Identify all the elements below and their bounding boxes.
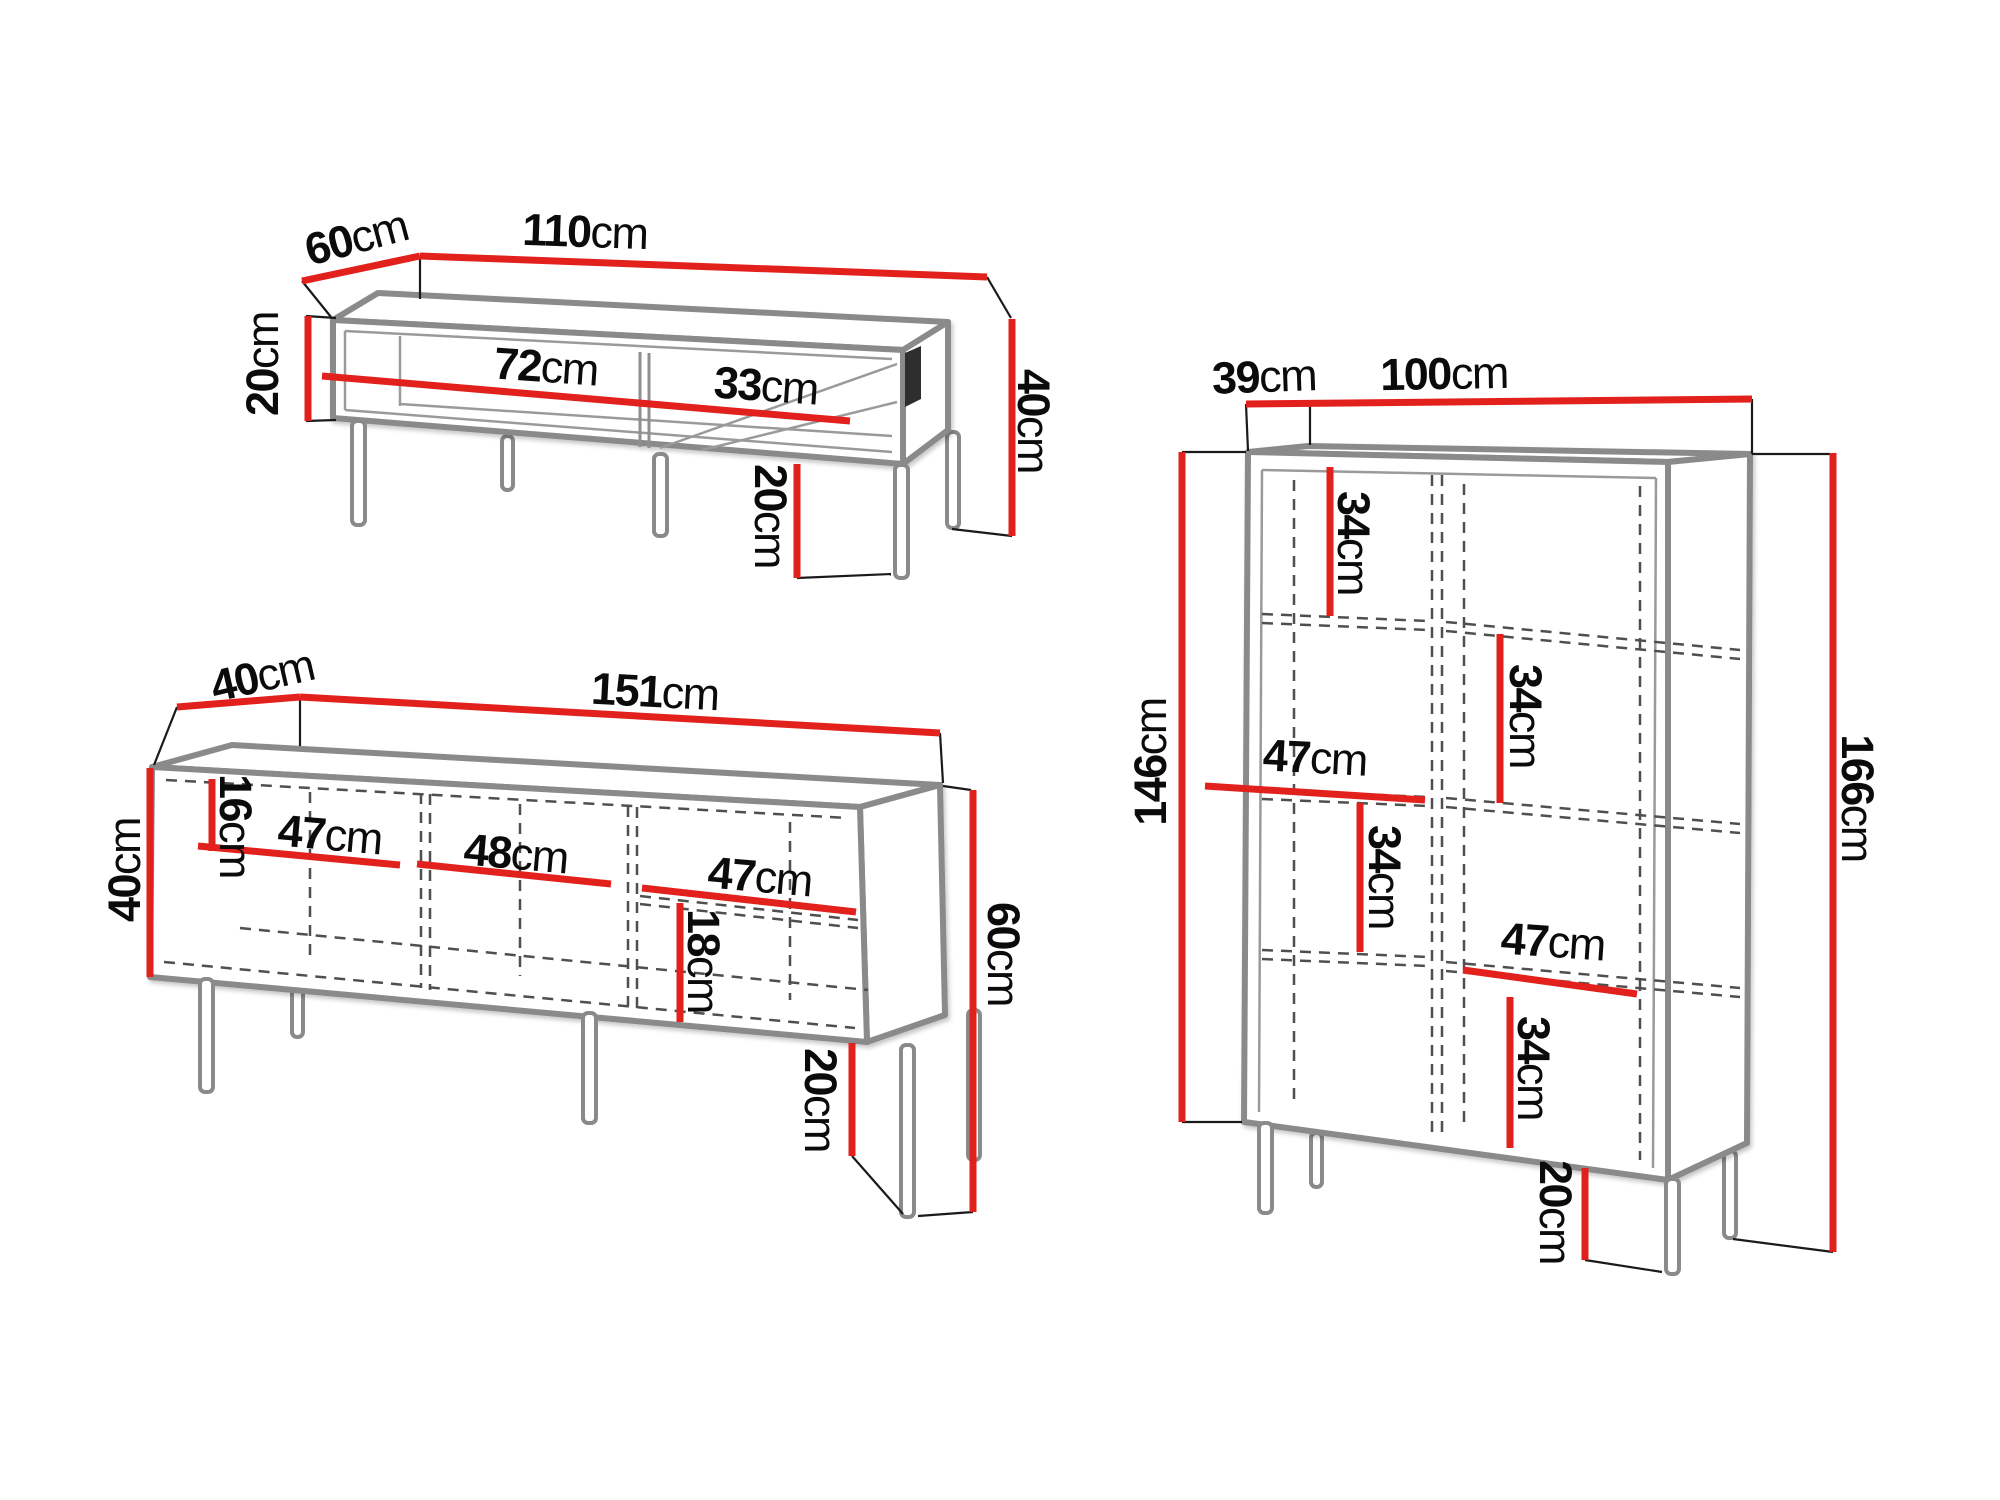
dim-line-width bbox=[420, 256, 987, 277]
sideboard-width-label: 151cm bbox=[590, 662, 720, 720]
diagram-canvas: 60cm 110cm 20cm 72cm 33cm 40cm 20cm bbox=[0, 0, 2000, 1500]
cabinet-carcass-height-label: 146cm bbox=[1125, 698, 1176, 826]
cabinet-width-label: 100cm bbox=[1380, 346, 1508, 399]
coffee-shelf-right-label: 33cm bbox=[712, 356, 819, 414]
display-cabinet: 39cm 100cm 146cm 34cm 47cm 34cm 34cm 47c… bbox=[1125, 346, 1884, 1274]
coffee-table: 60cm 110cm 20cm 72cm 33cm 40cm 20cm bbox=[237, 199, 1060, 578]
coffee-table-side-opening bbox=[905, 346, 921, 407]
cabinet-depth-label: 39cm bbox=[1211, 349, 1317, 404]
coffee-shelf-left-label: 72cm bbox=[492, 337, 599, 395]
sideboard: 40cm 151cm 40cm 16cm 47cm 48cm 47cm 18cm… bbox=[99, 638, 1030, 1217]
sideboard-top-offset-label: 16cm bbox=[211, 774, 262, 878]
coffee-table-carcass bbox=[333, 293, 948, 464]
cabinet-left-mid-section-label: 34cm bbox=[1360, 825, 1411, 929]
coffee-width-label: 110cm bbox=[522, 203, 649, 258]
cabinet-right-shelf-width-label: 47cm bbox=[1499, 912, 1606, 970]
sideboard-compartment-middle-label: 48cm bbox=[462, 823, 570, 883]
sideboard-carcass bbox=[150, 745, 945, 1042]
coffee-total-height-label: 40cm bbox=[1009, 369, 1060, 473]
sideboard-carcass-height-label: 40cm bbox=[99, 818, 150, 922]
sideboard-compartment-left-label: 47cm bbox=[276, 804, 384, 864]
sideboard-shelf-offset-label: 18cm bbox=[679, 909, 730, 1013]
sideboard-compartment-right-label: 47cm bbox=[706, 846, 814, 906]
cabinet-total-height-label: 166cm bbox=[1833, 734, 1884, 862]
cabinet-right-top-section-label: 34cm bbox=[1501, 664, 1552, 768]
cabinet-left-shelf-width-label: 47cm bbox=[1262, 729, 1369, 785]
cabinet-right-bottom-section-label: 34cm bbox=[1509, 1016, 1560, 1120]
cabinet-carcass bbox=[1244, 446, 1750, 1180]
cabinet-left-top-section-label: 34cm bbox=[1329, 491, 1380, 595]
coffee-leg-height-label: 20cm bbox=[746, 464, 797, 568]
sideboard-total-height-label: 60cm bbox=[979, 902, 1030, 1006]
cabinet-leg-height-label: 20cm bbox=[1531, 1160, 1582, 1264]
furniture-dimension-diagram: 60cm 110cm 20cm 72cm 33cm 40cm 20cm bbox=[0, 0, 2000, 1500]
coffee-carcass-height-label: 20cm bbox=[237, 312, 288, 416]
sideboard-leg-height-label: 20cm bbox=[796, 1048, 847, 1152]
dim-line-top bbox=[1246, 399, 1752, 404]
